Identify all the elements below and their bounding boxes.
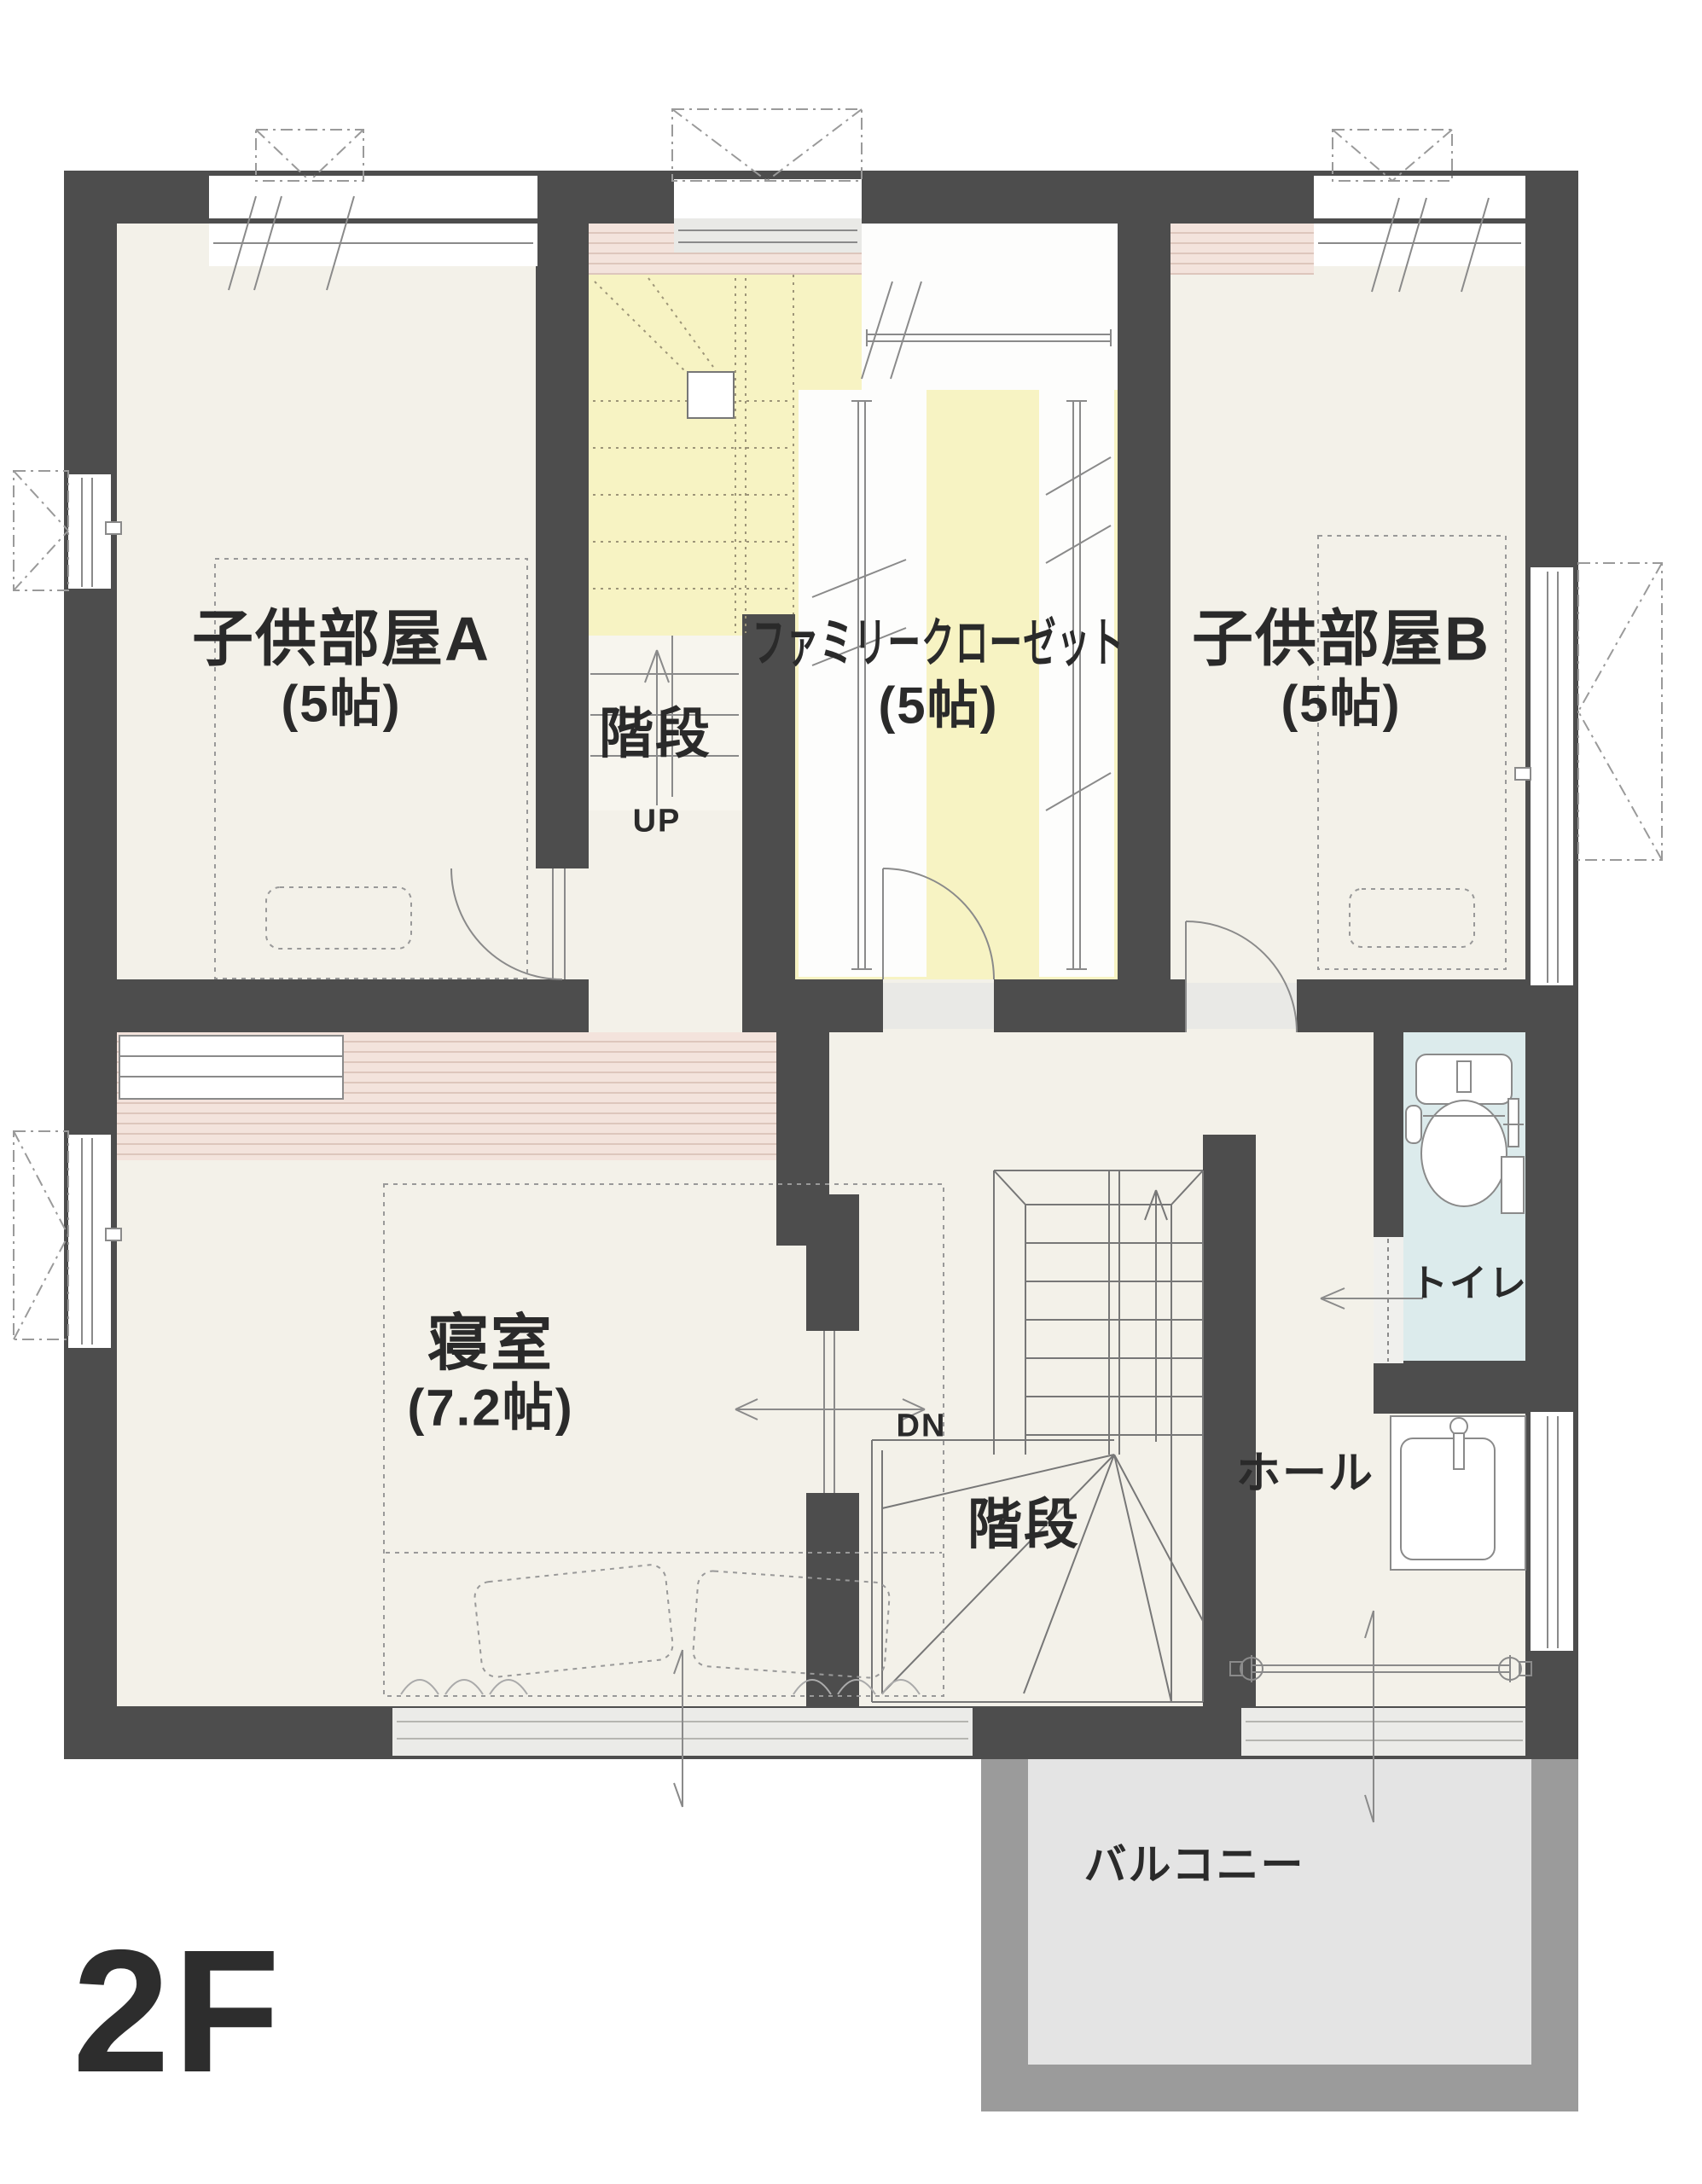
room-label-stairs-lower: 階段 — [967, 1481, 1080, 1560]
vent-box-room-b — [1333, 130, 1452, 181]
floor-plan-page: 子供部屋A (5帖) ファミリークローゼット (5帖) 子供部屋B (5帖) 階… — [0, 0, 1702, 2184]
room-size-child-a: (5帖) — [281, 663, 401, 737]
window-glass-hall-right — [1548, 1416, 1558, 1648]
casement-bedroom-left — [14, 1131, 68, 1339]
closet-rod-right — [1046, 401, 1111, 969]
vent-box-stairs — [672, 109, 862, 181]
casement-room-a-left — [14, 471, 68, 590]
door-room-b — [1186, 921, 1297, 1032]
door-toilet-sliding — [1321, 1239, 1423, 1362]
bedroom-window-arrow — [674, 1650, 683, 1807]
plan-linework — [0, 0, 1702, 2184]
window-glass-room-a-left — [82, 478, 121, 587]
room-size-bedroom: (7.2帖) — [407, 1367, 573, 1441]
closet-rod-top — [862, 282, 1111, 379]
balcony-door-glass — [1246, 1722, 1523, 1740]
window-glass-bedroom-left — [82, 1138, 121, 1345]
window-glass-stairs — [678, 230, 857, 242]
window-glass-room-a — [213, 196, 533, 290]
room-size-child-b: (5帖) — [1281, 663, 1401, 737]
washbasin — [1391, 1416, 1525, 1570]
balcony-door-arrow — [1365, 1611, 1374, 1822]
room-size-family-closet: (5帖) — [878, 665, 998, 739]
casement-room-b-right — [1578, 563, 1662, 860]
room-label-stairs-upper: 階段 — [599, 690, 712, 769]
stairs-newel-post — [688, 372, 734, 418]
bedroom-closet-shelf-lines — [119, 1036, 343, 1099]
window-glass-room-b — [1318, 198, 1521, 292]
door-family-closet — [883, 868, 994, 979]
room-label-toilet: トイレ — [1410, 1252, 1528, 1307]
stairs-dn-direction: DN — [897, 1409, 947, 1445]
room-label-hall: ホール — [1236, 1438, 1374, 1501]
stairs-upper-treads — [593, 275, 793, 633]
room-label-balcony: バルコニー — [1084, 1831, 1305, 1892]
vent-box-room-a — [256, 130, 363, 181]
window-glass-room-b-right — [1515, 572, 1558, 983]
floor-label: 2F — [73, 1911, 283, 2112]
stairs-up-direction: UP — [633, 804, 682, 840]
laundry-pole — [1230, 1655, 1531, 1682]
door-room-a — [451, 868, 565, 979]
toilet-fixture — [1406, 1054, 1524, 1213]
